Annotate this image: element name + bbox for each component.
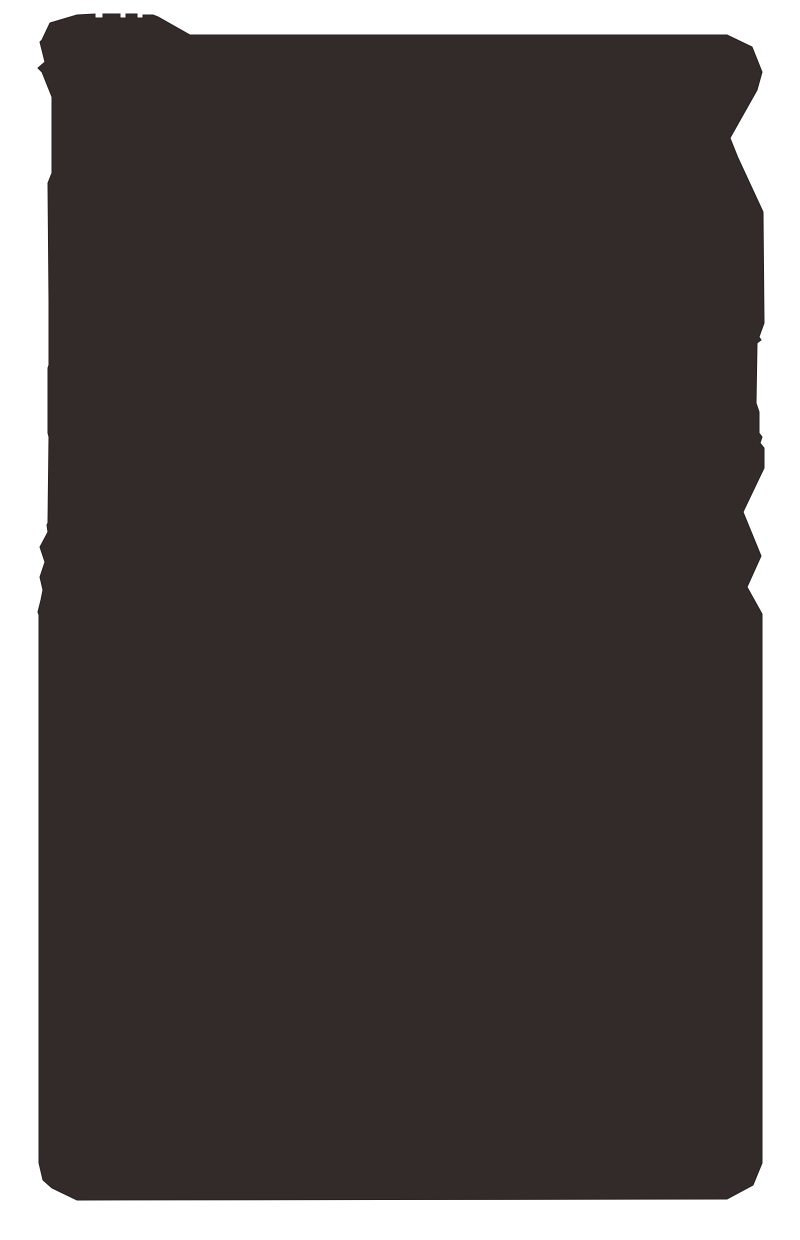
canvas-background — [0, 0, 800, 1240]
dark-silhouette-shape — [38, 14, 764, 1200]
silhouette-graphic — [0, 0, 800, 1240]
